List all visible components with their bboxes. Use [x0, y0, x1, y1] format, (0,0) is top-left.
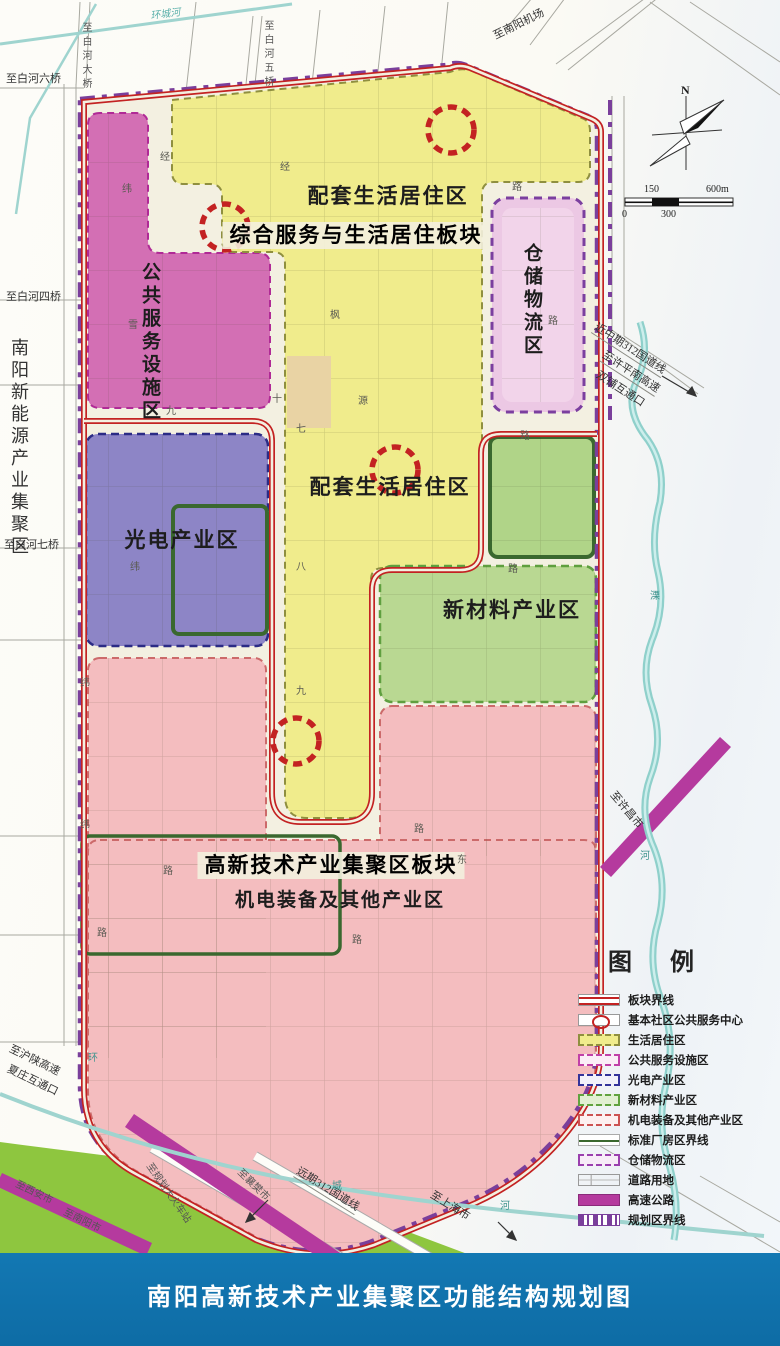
road-char: 七 [296, 420, 306, 435]
legend-swatch-planning-boundary [578, 1214, 620, 1226]
road-char: 十 [272, 390, 282, 405]
road-char: 路 [508, 560, 518, 575]
label-warehouse: 仓储物流区 [522, 243, 541, 358]
legend-item: 板块界线 [578, 993, 776, 1006]
scale-0: 0 [622, 210, 627, 220]
road-char: 路 [163, 862, 173, 877]
legend-swatch-block-boundary [578, 994, 620, 1006]
map-title: 南阳高新技术产业集聚区功能结构规划图 [147, 1277, 633, 1346]
peripheral-roads-left [0, 84, 88, 1046]
road-char: 路 [414, 820, 424, 835]
road-char: 路 [97, 924, 107, 939]
scale-600m: 600m [706, 185, 729, 195]
legend-swatch-new-materials [578, 1094, 620, 1106]
planning-map-page: 配套生活居住区 综合服务与生活居住板块 公共服务设施区 仓储物流区 光电产业区 … [0, 0, 780, 1346]
legend-item: 标准厂房区界线 [578, 1133, 776, 1146]
road-char: 路 [548, 312, 558, 327]
label-public-service: 公共服务设施区 [140, 262, 159, 423]
road-char: 雪 [128, 316, 138, 331]
label-road-baihe5: 至白河五桥 [262, 20, 272, 90]
road-char: 纬 [130, 558, 140, 573]
label-road-baihe4: 至白河四桥 [6, 292, 61, 303]
legend-swatch-road-land [578, 1174, 620, 1186]
legend-item: 高速公路 [578, 1193, 776, 1206]
legend-item: 公共服务设施区 [578, 1053, 776, 1066]
legend-item: 规划区界线 [578, 1213, 776, 1226]
label-ring-char-2: 城 [332, 1182, 342, 1192]
label-road-baihe6: 至白河六桥 [6, 74, 61, 85]
label-mechatronics: 机电装备及其他产业区 [235, 891, 445, 910]
legend-item: 光电产业区 [578, 1073, 776, 1086]
label-adjacent-area: 南阳新能源产业集聚区 [10, 338, 28, 558]
label-river-char-1: 溧 [650, 592, 660, 602]
legend-swatch-residential [578, 1034, 620, 1046]
legend-item: 基本社区公共服务中心 [578, 1013, 776, 1026]
road-char: 纬 [80, 674, 90, 689]
legend-swatch-warehouse [578, 1154, 620, 1166]
scale-300: 300 [661, 210, 676, 220]
legend-swatch-public-service [578, 1054, 620, 1066]
road-char: 经 [160, 148, 170, 163]
road-char: 九 [296, 682, 306, 697]
road-char: 纬 [122, 180, 132, 195]
legend-swatch-factory-boundary [578, 1134, 620, 1146]
label-plate-hightech: 高新技术产业集聚区板块 [198, 852, 465, 879]
label-residential-mid: 配套生活居住区 [310, 477, 471, 498]
label-residential-top: 配套生活居住区 [308, 186, 469, 207]
label-river-char-2: 河 [640, 852, 650, 862]
label-plate-service-living: 综合服务与生活居住板块 [223, 222, 490, 249]
road-char: 路 [512, 178, 522, 193]
legend-item: 生活居住区 [578, 1033, 776, 1046]
legend-swatch-mechatronics [578, 1114, 620, 1126]
scale-bar [625, 198, 733, 206]
scale-150: 150 [644, 185, 659, 195]
legend-item: 机电装备及其他产业区 [578, 1113, 776, 1126]
label-ring-char-3: 河 [500, 1202, 510, 1212]
legend: 图 例 板块界线 基本社区公共服务中心 生活居住区 公共服务设施区 光电产业区 … [578, 942, 776, 1233]
road-char: 东 [457, 851, 467, 866]
road-char: 源 [358, 392, 368, 407]
legend-swatch-service-center [578, 1014, 620, 1026]
legend-swatch-expressway [578, 1194, 620, 1206]
legend-title: 图 例 [608, 942, 776, 977]
label-new-materials: 新材料产业区 [443, 600, 581, 621]
road-char: 路 [352, 931, 362, 946]
label-optoelectronics: 光电产业区 [125, 530, 240, 551]
road-char: 纬 [80, 816, 90, 831]
north-label: N [681, 84, 690, 96]
zone-mixed-block [287, 356, 331, 428]
road-char: 枫 [330, 306, 340, 321]
legend-item: 道路用地 [578, 1173, 776, 1186]
road-char: 经 [280, 158, 290, 173]
legend-swatch-optoelectronics [578, 1074, 620, 1086]
road-char: 八 [296, 558, 306, 573]
label-road-baihe7: 至白河七桥 [4, 540, 59, 551]
legend-item: 仓储物流区 [578, 1153, 776, 1166]
label-road-baihe-bridge: 至白河大桥 [80, 22, 90, 92]
legend-item: 新材料产业区 [578, 1093, 776, 1106]
title-bar: 南阳高新技术产业集聚区功能结构规划图 [0, 1253, 780, 1346]
road-char: 九 [166, 402, 176, 417]
road-char: 路 [520, 427, 530, 442]
label-ring-char-1: 环 [88, 1054, 98, 1064]
north-arrow-icon [650, 96, 724, 170]
